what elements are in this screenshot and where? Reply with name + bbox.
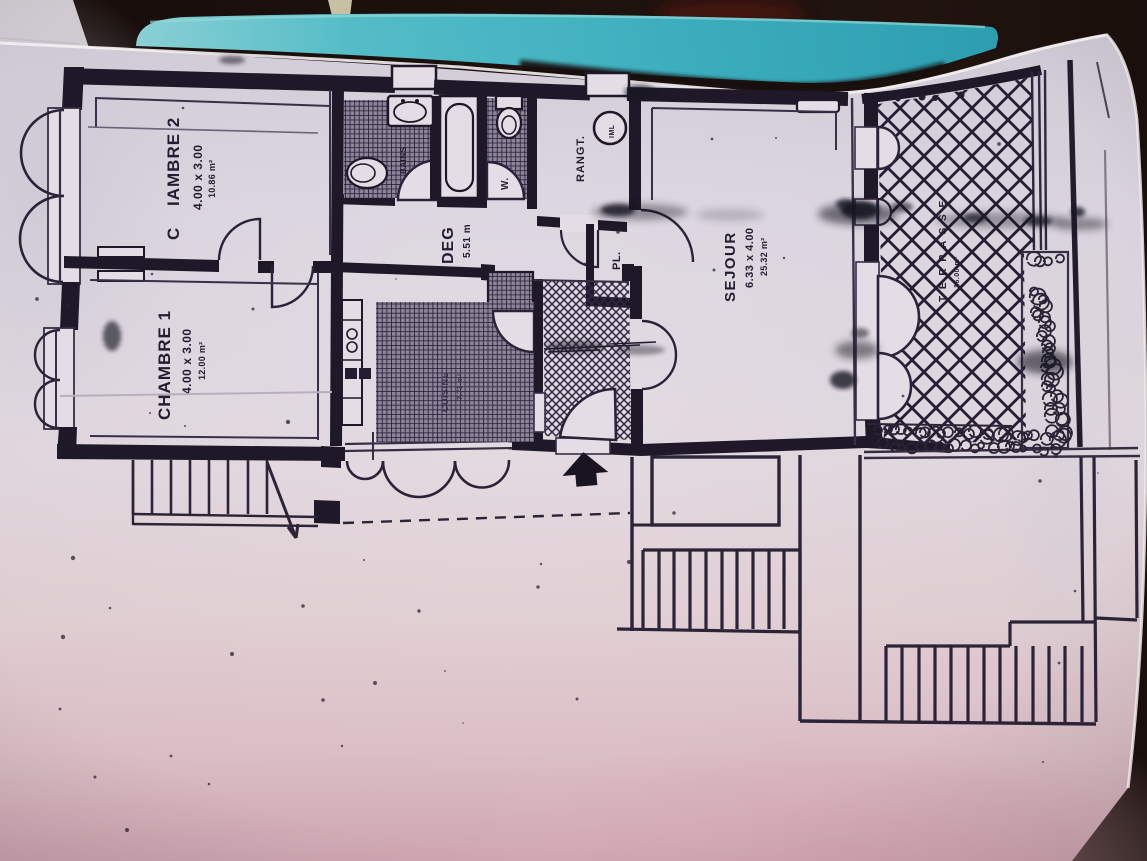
svg-text:CUISINE: CUISINE — [440, 372, 450, 412]
svg-text:5.51 m: 5.51 m — [462, 224, 473, 258]
svg-text:IML: IML — [609, 124, 616, 138]
svg-text:4.00 x 3.00: 4.00 x 3.00 — [191, 144, 205, 210]
svg-text:DEG: DEG — [440, 226, 457, 264]
svg-text:RANGT.: RANGT. — [575, 135, 587, 182]
svg-text:SEJOUR: SEJOUR — [722, 231, 739, 302]
svg-text:T E R R A S S E: T E R R A S S E — [938, 199, 949, 302]
svg-text:12.00 m²: 12.00 m² — [197, 342, 207, 380]
svg-text:CHAMBRE 1: CHAMBRE 1 — [155, 310, 174, 420]
svg-text:25.32 m²: 25.32 m² — [759, 238, 769, 276]
svg-text:BAINS: BAINS — [399, 146, 408, 174]
svg-text:7.73 m²: 7.73 m² — [457, 373, 464, 400]
svg-text:16.00 m²: 16.00 m² — [954, 256, 961, 288]
svg-text:PL.: PL. — [611, 251, 623, 270]
svg-text:C: C — [164, 227, 183, 240]
svg-text:10.86 m²: 10.86 m² — [207, 160, 217, 198]
svg-text:W.: W. — [500, 177, 511, 190]
svg-text:6.33 x 4.00: 6.33 x 4.00 — [744, 227, 756, 288]
svg-text:4.00 x 3.00: 4.00 x 3.00 — [180, 328, 194, 394]
